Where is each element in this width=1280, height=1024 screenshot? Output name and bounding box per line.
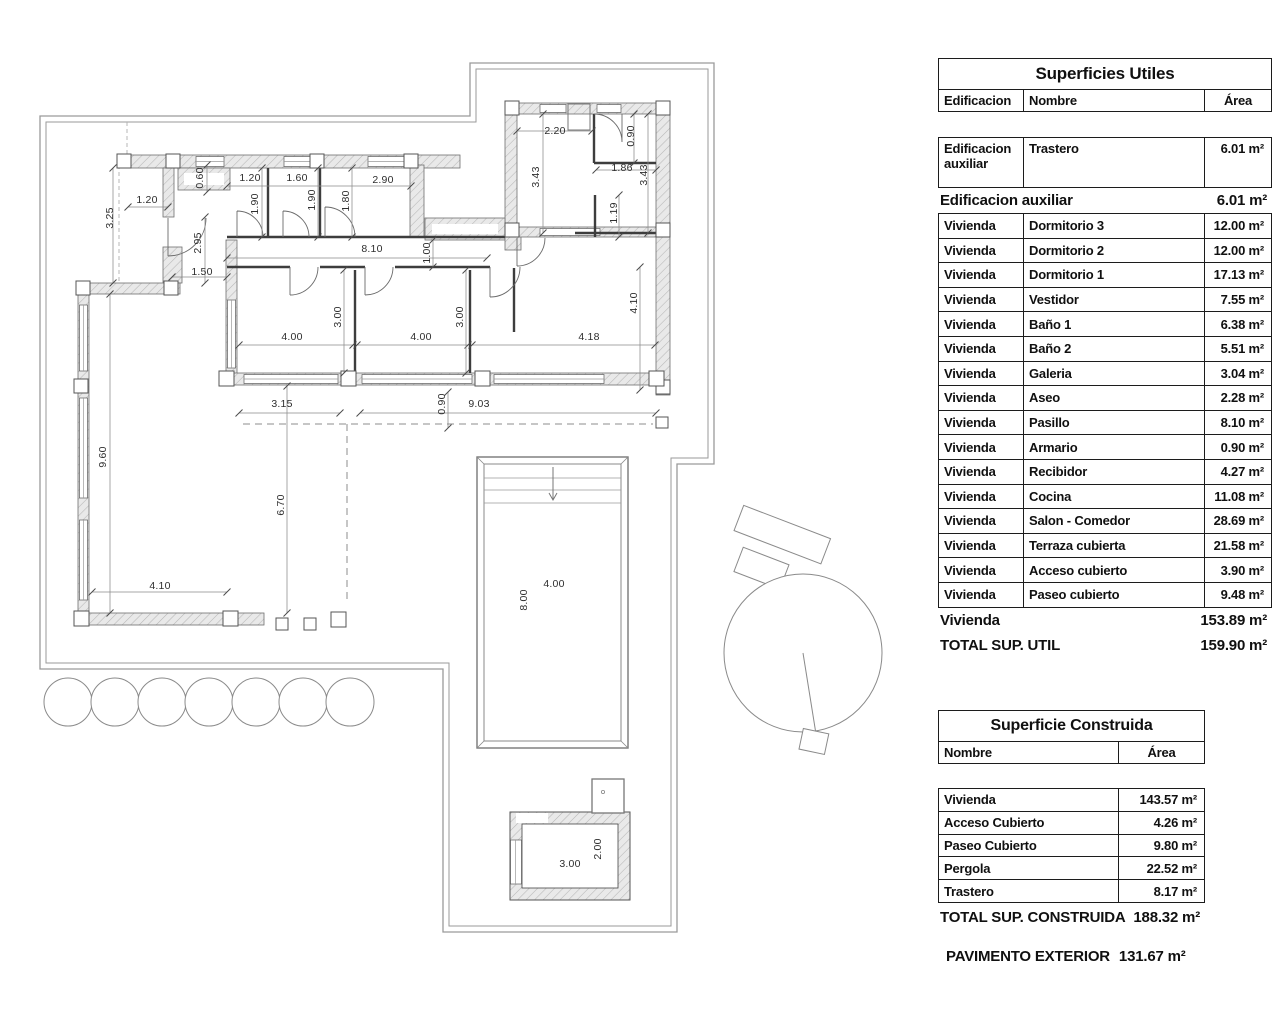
cell-area: 12.00 m² (1204, 214, 1271, 238)
dimension-label: 1.19 (608, 202, 620, 223)
cell-edificacion: Vivienda (939, 534, 1023, 558)
cell-area: 3.90 m² (1204, 558, 1271, 582)
cell-area: 2.28 m² (1204, 386, 1271, 410)
pavimento-exterior-note: PAVIMENTO EXTERIOR 131.67 m² (938, 948, 1205, 965)
total-label: TOTAL SUP. CONSTRUIDA (940, 909, 1126, 926)
dimension-label: 2.00 (592, 838, 604, 859)
cell-nombre: Armario (1023, 435, 1204, 459)
table-row: Pergola22.52 m² (939, 857, 1204, 880)
dimension-label: 3.15 (271, 398, 292, 410)
dimension-label: 1.20 (136, 194, 157, 206)
table-row: ViviendaCocina11.08 m² (939, 485, 1271, 510)
cell-edificacion: Vivienda (939, 411, 1023, 435)
sc-total: TOTAL SUP. CONSTRUIDA 188.32 m² (938, 905, 1205, 931)
cell-edificacion: Vivienda (939, 583, 1023, 607)
su-title: Superficies Utiles (939, 59, 1271, 90)
table-row: ViviendaSalon - Comedor28.69 m² (939, 509, 1271, 534)
table-row: Paseo Cubierto9.80 m² (939, 835, 1204, 858)
dimension-label: 9.60 (97, 446, 109, 467)
cell-area: 8.10 m² (1204, 411, 1271, 435)
cell-nombre: Dormitorio 1 (1023, 263, 1204, 287)
cell-nombre: Cocina (1023, 485, 1204, 509)
dimension-label: 1.90 (306, 189, 318, 210)
table-row: ViviendaTerraza cubierta21.58 m² (939, 534, 1271, 559)
sc-title: Superficie Construida (939, 711, 1204, 742)
cell-area: 0.90 m² (1204, 435, 1271, 459)
dimension-label: 1.60 (286, 172, 307, 184)
dimension-label: 3.43 (638, 164, 650, 185)
dimension-label: 0.90 (625, 125, 637, 146)
dimension-label: 4.18 (578, 331, 599, 343)
su-col-area: Área (1204, 90, 1271, 111)
cell-edificacion: Vivienda (939, 263, 1023, 287)
table-row: ViviendaDormitorio 312.00 m² (939, 214, 1271, 239)
table-row: ViviendaArmario0.90 m² (939, 435, 1271, 460)
table-row: ViviendaGaleria3.04 m² (939, 362, 1271, 387)
sc-header: Superficie Construida Nombre Área (938, 710, 1205, 764)
cell-nombre: Dormitorio 2 (1023, 239, 1204, 263)
sc-col-area: Área (1118, 742, 1204, 763)
trees-row (44, 678, 374, 726)
cell-nombre: Trastero (939, 880, 1118, 902)
dimension-label: 8.00 (518, 589, 530, 610)
cell-nombre: Aseo (1023, 386, 1204, 410)
table-row: ViviendaRecibidor4.27 m² (939, 460, 1271, 485)
cell-edificacion: Vivienda (939, 214, 1023, 238)
pool (477, 457, 628, 748)
cell-area: 22.52 m² (1118, 857, 1204, 879)
cell-area: 8.17 m² (1118, 880, 1204, 902)
cell-area: 4.26 m² (1118, 812, 1204, 834)
table-row: ViviendaBaño 16.38 m² (939, 312, 1271, 337)
su-aux-box: Edificacion auxiliar Trastero 6.01 m² (938, 137, 1272, 188)
table-row: Acceso Cubierto4.26 m² (939, 812, 1204, 835)
table-row: ViviendaAseo2.28 m² (939, 386, 1271, 411)
cell-edificacion: Vivienda (939, 337, 1023, 361)
sc-rows-box: Vivienda143.57 m²Acceso Cubierto4.26 m²P… (938, 788, 1205, 903)
cell-nombre: Baño 1 (1023, 312, 1204, 336)
total-value: 159.90 m² (1200, 637, 1269, 654)
cell-nombre: Vivienda (939, 789, 1118, 811)
subtotal-value: 153.89 m² (1200, 612, 1269, 629)
su-grand-total: TOTAL SUP. UTIL 159.90 m² (938, 633, 1272, 658)
table-row: Edificacion auxiliar Trastero 6.01 m² (939, 138, 1271, 188)
cell-area: 6.38 m² (1204, 312, 1271, 336)
dimension-label: 4.00 (281, 331, 302, 343)
cell-area: 9.80 m² (1118, 835, 1204, 857)
cell-nombre: Pasillo (1023, 411, 1204, 435)
cell-area: 21.58 m² (1204, 534, 1271, 558)
cell-area: 9.48 m² (1204, 583, 1271, 607)
dimension-label: 1.20 (239, 172, 260, 184)
su-header: Superficies Utiles Edificacion Nombre Ár… (938, 58, 1272, 112)
subtotal-label: Vivienda (940, 612, 1000, 629)
floor-plan-drawing (0, 0, 940, 1024)
cell-area: 11.08 m² (1204, 485, 1271, 509)
table-row: ViviendaDormitorio 212.00 m² (939, 239, 1271, 264)
dimension-label: 2.90 (372, 174, 393, 186)
dimension-label: 3.00 (454, 306, 466, 327)
dimension-label: 8.10 (361, 243, 382, 255)
cell-area: 4.27 m² (1204, 460, 1271, 484)
cell-edificacion: Vivienda (939, 239, 1023, 263)
table-row: ViviendaPasillo8.10 m² (939, 411, 1271, 436)
floor-plan: 2.200.901.863.433.431.191.201.602.900.60… (0, 0, 940, 1024)
total-label: TOTAL SUP. UTIL (940, 637, 1060, 654)
dimension-label: 4.00 (543, 578, 564, 590)
cell-edificacion: Vivienda (939, 509, 1023, 533)
trastero-building (510, 779, 630, 900)
su-vivienda-subtotal: Vivienda 153.89 m² (938, 608, 1272, 633)
cell-edificacion: Vivienda (939, 460, 1023, 484)
cell-edificacion: Vivienda (939, 558, 1023, 582)
dimension-label: 9.03 (468, 398, 489, 410)
cell-area: 28.69 m² (1204, 509, 1271, 533)
dimension-label: 0.90 (436, 393, 448, 414)
dimension-label: 3.00 (332, 306, 344, 327)
cell-edificacion: Vivienda (939, 288, 1023, 312)
dimension-label: 2.20 (544, 125, 565, 137)
dimension-label: 4.10 (628, 292, 640, 313)
cell-nombre: Galeria (1023, 362, 1204, 386)
cell-nombre: Salon - Comedor (1023, 509, 1204, 533)
pavimento-value: 131.67 m² (1119, 948, 1186, 965)
dimension-label: 0.60 (194, 167, 206, 188)
cell-edificacion: Vivienda (939, 362, 1023, 386)
table-row: ViviendaAcceso cubierto3.90 m² (939, 558, 1271, 583)
table-row: ViviendaDormitorio 117.13 m² (939, 263, 1271, 288)
table-row: ViviendaBaño 25.51 m² (939, 337, 1271, 362)
subtotal-label: Edificacion auxiliar (940, 192, 1073, 209)
cell-nombre: Acceso Cubierto (939, 812, 1118, 834)
table-row: Vivienda143.57 m² (939, 789, 1204, 812)
cell-edificacion: Edificacion auxiliar (939, 138, 1023, 187)
subtotal-value: 6.01 m² (1217, 192, 1269, 209)
total-value: 188.32 m² (1133, 909, 1202, 926)
dimension-label: 1.00 (421, 242, 433, 263)
dimension-label: 1.50 (191, 266, 212, 278)
cell-area: 5.51 m² (1204, 337, 1271, 361)
su-rows-box: ViviendaDormitorio 312.00 m²ViviendaDorm… (938, 213, 1272, 608)
table-row: ViviendaVestidor7.55 m² (939, 288, 1271, 313)
dimension-label: 1.90 (249, 193, 261, 214)
dimension-label: 1.80 (340, 190, 352, 211)
cell-area: 6.01 m² (1204, 138, 1271, 187)
cell-area: 17.13 m² (1204, 263, 1271, 287)
dimension-label: 3.00 (559, 858, 580, 870)
dimension-label: 4.10 (149, 580, 170, 592)
cell-nombre: Pergola (939, 857, 1118, 879)
cell-area: 3.04 m² (1204, 362, 1271, 386)
cell-nombre: Terraza cubierta (1023, 534, 1204, 558)
dimension-label: 3.25 (104, 207, 116, 228)
cell-nombre: Acceso cubierto (1023, 558, 1204, 582)
superficies-utiles-table: Superficies Utiles Edificacion Nombre Ár… (938, 58, 1272, 658)
cell-nombre: Recibidor (1023, 460, 1204, 484)
table-row: Trastero8.17 m² (939, 880, 1204, 903)
cell-nombre: Vestidor (1023, 288, 1204, 312)
su-aux-subtotal: Edificacion auxiliar 6.01 m² (938, 188, 1272, 213)
cell-edificacion: Vivienda (939, 386, 1023, 410)
superficie-construida-table: Superficie Construida Nombre Área Vivien… (938, 710, 1205, 965)
dimension-label: 6.70 (275, 494, 287, 515)
cell-edificacion: Vivienda (939, 435, 1023, 459)
table-row: ViviendaPaseo cubierto9.48 m² (939, 583, 1271, 608)
dimension-label: 3.43 (530, 166, 542, 187)
su-col-nombre: Nombre (1023, 90, 1204, 111)
cell-nombre: Baño 2 (1023, 337, 1204, 361)
cell-edificacion: Vivienda (939, 312, 1023, 336)
cell-nombre: Paseo Cubierto (939, 835, 1118, 857)
cell-nombre: Trastero (1023, 138, 1204, 187)
dimension-label: 4.00 (410, 331, 431, 343)
cell-area: 7.55 m² (1204, 288, 1271, 312)
sc-col-nombre: Nombre (939, 742, 1118, 763)
pavimento-label: PAVIMENTO EXTERIOR (946, 948, 1110, 965)
dimension-label: 1.86 (611, 162, 632, 174)
su-col-edificacion: Edificacion (939, 90, 1023, 111)
cell-edificacion: Vivienda (939, 485, 1023, 509)
dimension-label: 2.95 (192, 232, 204, 253)
cell-nombre: Dormitorio 3 (1023, 214, 1204, 238)
cell-area: 143.57 m² (1118, 789, 1204, 811)
cell-nombre: Paseo cubierto (1023, 583, 1204, 607)
round-feature (724, 505, 882, 754)
cell-area: 12.00 m² (1204, 239, 1271, 263)
